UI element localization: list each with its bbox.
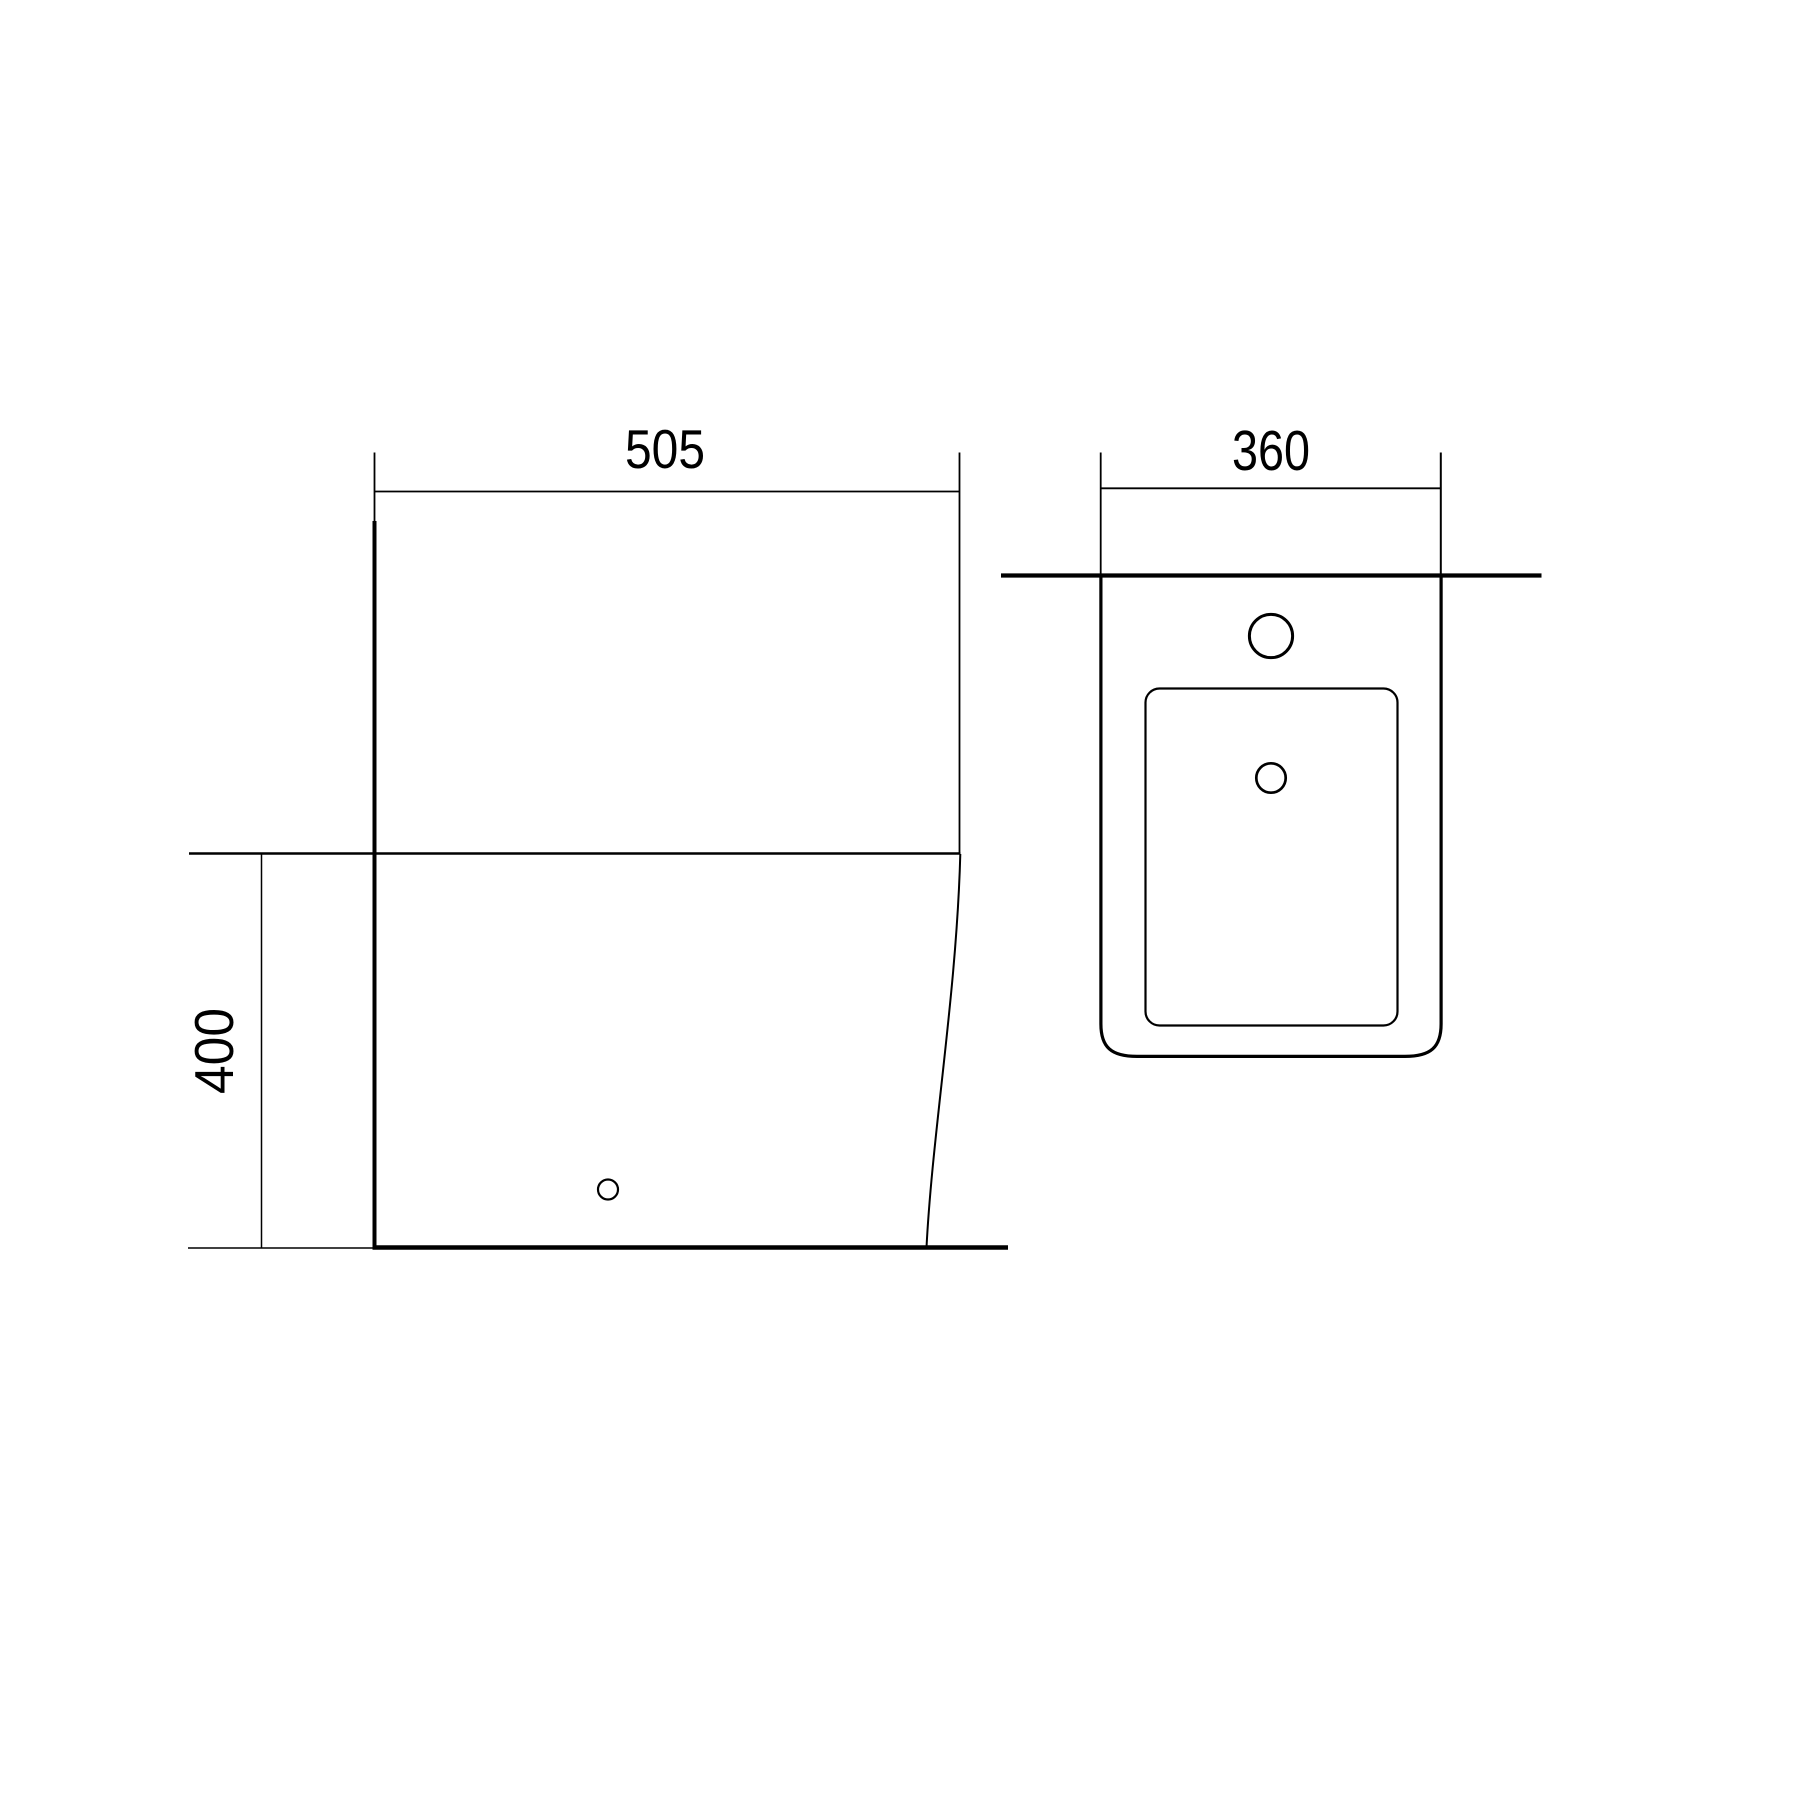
svg-text:400: 400 [183, 1008, 245, 1094]
svg-text:505: 505 [625, 418, 705, 480]
svg-text:360: 360 [1232, 419, 1310, 483]
